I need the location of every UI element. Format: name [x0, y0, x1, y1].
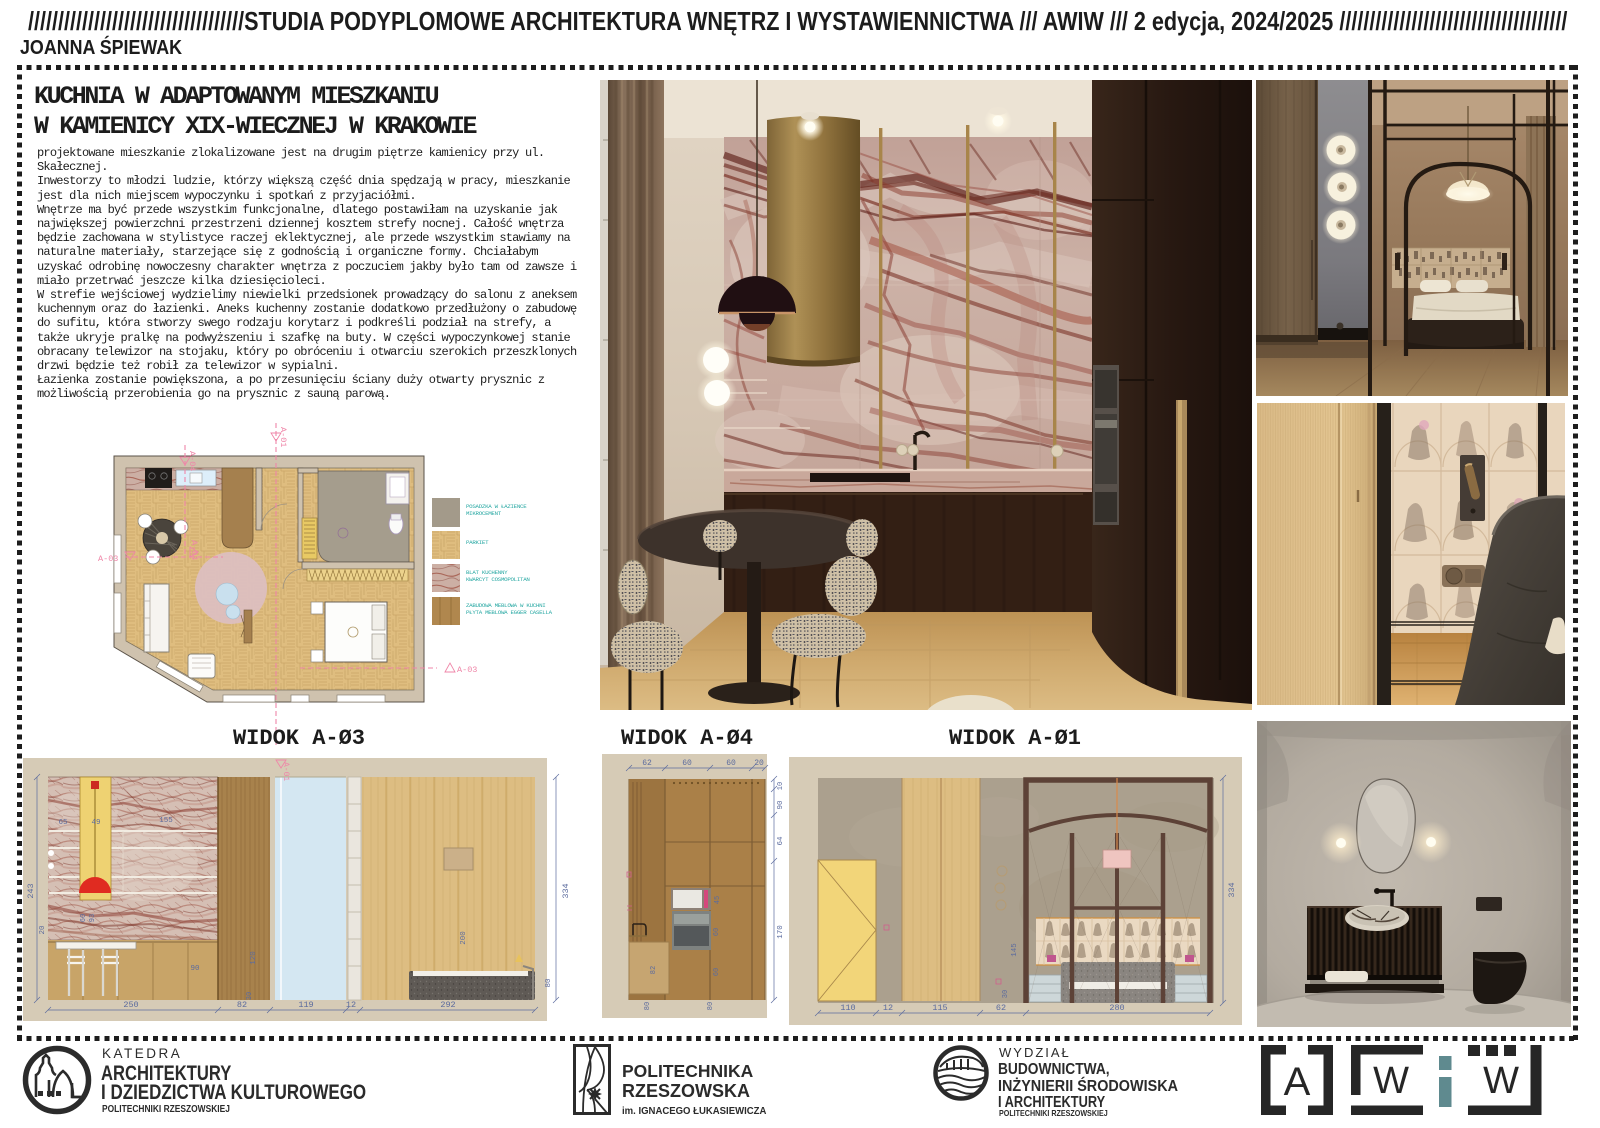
svg-text:KWARCYT COSMOPOLITAN: KWARCYT COSMOPOLITAN	[466, 576, 530, 583]
svg-text:A-04: A-04	[187, 451, 197, 471]
svg-text:MIKROCEMENT: MIKROCEMENT	[466, 510, 502, 517]
svg-text:BLAT KUCHENNY: BLAT KUCHENNY	[466, 569, 508, 576]
svg-text:A-01: A-01	[278, 427, 288, 447]
svg-text:A-03: A-03	[98, 554, 118, 564]
svg-text:80: 80	[707, 1002, 715, 1010]
svg-text:82: 82	[650, 966, 658, 974]
svg-text:12: 12	[346, 1000, 356, 1010]
svg-text:60: 60	[713, 968, 721, 976]
svg-text:12: 12	[883, 1003, 893, 1013]
svg-text:62: 62	[642, 759, 652, 768]
svg-text:W: W	[1373, 1060, 1409, 1102]
svg-text:A-04: A-04	[189, 540, 199, 560]
svg-text:170: 170	[777, 925, 785, 939]
svg-text:280: 280	[1109, 1003, 1124, 1013]
svg-text:90: 90	[777, 800, 785, 810]
svg-text:60: 60	[713, 928, 721, 936]
svg-text:60: 60	[726, 759, 736, 768]
svg-text:A-03: A-03	[457, 665, 477, 675]
svg-text:243: 243	[26, 883, 36, 898]
svg-text:250: 250	[123, 1000, 138, 1010]
svg-text:155: 155	[159, 817, 173, 825]
svg-text:145: 145	[1011, 943, 1019, 957]
svg-text:119: 119	[298, 1000, 313, 1010]
svg-text:10: 10	[777, 782, 785, 790]
svg-text:62: 62	[996, 1003, 1006, 1013]
svg-text:20: 20	[39, 925, 47, 935]
svg-text:334: 334	[561, 883, 571, 898]
svg-text:110: 110	[840, 1003, 855, 1013]
svg-text:120: 120	[250, 951, 258, 965]
svg-text:30: 30	[246, 992, 254, 1000]
svg-text:80: 80	[545, 978, 553, 988]
svg-text:A-01: A-01	[281, 762, 290, 781]
svg-text:20: 20	[754, 759, 764, 768]
svg-text:POSADZKA W ŁAZIENCE: POSADZKA W ŁAZIENCE	[466, 503, 527, 510]
svg-text:30: 30	[1002, 990, 1010, 998]
svg-text:115: 115	[932, 1003, 947, 1013]
svg-text:PŁYTA MEBLOWA EGGER CASELLA: PŁYTA MEBLOWA EGGER CASELLA	[466, 609, 553, 616]
svg-text:93: 93	[89, 914, 97, 922]
svg-text:ZABUDOWA MEBLOWA W KUCHNI: ZABUDOWA MEBLOWA W KUCHNI	[466, 602, 545, 609]
svg-text:65: 65	[58, 819, 68, 827]
svg-text:64: 64	[777, 836, 785, 846]
svg-text:334: 334	[1227, 882, 1237, 897]
svg-text:200: 200	[460, 931, 468, 945]
svg-text:W: W	[1483, 1060, 1519, 1102]
svg-text:90: 90	[190, 965, 200, 973]
svg-text:A: A	[1284, 1060, 1311, 1104]
svg-text:45: 45	[714, 896, 722, 904]
svg-text:49: 49	[91, 819, 100, 827]
svg-text:60: 60	[80, 914, 88, 922]
svg-text:292: 292	[440, 1000, 455, 1010]
svg-text:60: 60	[682, 759, 692, 768]
svg-text:PARKIET: PARKIET	[466, 539, 489, 546]
svg-text:82: 82	[237, 1000, 247, 1010]
svg-text:80: 80	[644, 1002, 652, 1010]
